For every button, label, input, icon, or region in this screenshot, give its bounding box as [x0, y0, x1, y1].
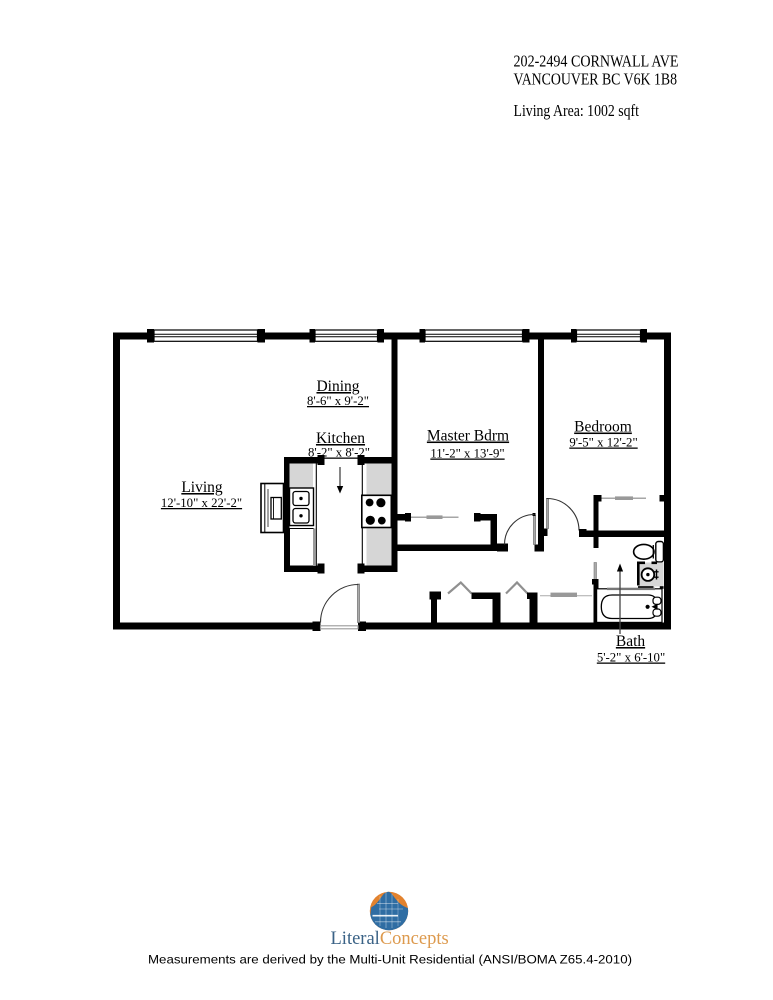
svg-text:8'-2" x 8'-2": 8'-2" x 8'-2" — [308, 446, 370, 460]
svg-text:5'-2" x 6'-10": 5'-2" x 6'-10" — [597, 651, 665, 665]
svg-text:Living: Living — [181, 479, 223, 496]
svg-text:11'-2" x 13'-9": 11'-2" x 13'-9" — [430, 447, 504, 461]
svg-text:Measurements are derived by th: Measurements are derived by the Multi-Un… — [148, 953, 632, 967]
svg-text:Bath: Bath — [616, 633, 646, 650]
svg-text:LiteralConcepts: LiteralConcepts — [331, 929, 449, 949]
svg-text:8'-6" x 9'-2": 8'-6" x 9'-2" — [307, 394, 369, 408]
svg-text:202-2494 CORNWALL AVE: 202-2494 CORNWALL AVE — [514, 52, 679, 71]
svg-text:Dining: Dining — [316, 378, 359, 395]
svg-text:9'-5" x 12'-2": 9'-5" x 12'-2" — [569, 436, 637, 450]
svg-text:VANCOUVER BC V6K 1B8: VANCOUVER BC V6K 1B8 — [514, 69, 678, 88]
svg-text:Bedroom: Bedroom — [574, 419, 632, 436]
svg-text:12'-10" x 22'-2": 12'-10" x 22'-2" — [161, 496, 242, 510]
svg-text:Master Bdrm: Master Bdrm — [427, 428, 509, 445]
svg-text:Living Area: 1002 sqft: Living Area: 1002 sqft — [514, 101, 640, 120]
svg-text:Kitchen: Kitchen — [316, 430, 365, 447]
